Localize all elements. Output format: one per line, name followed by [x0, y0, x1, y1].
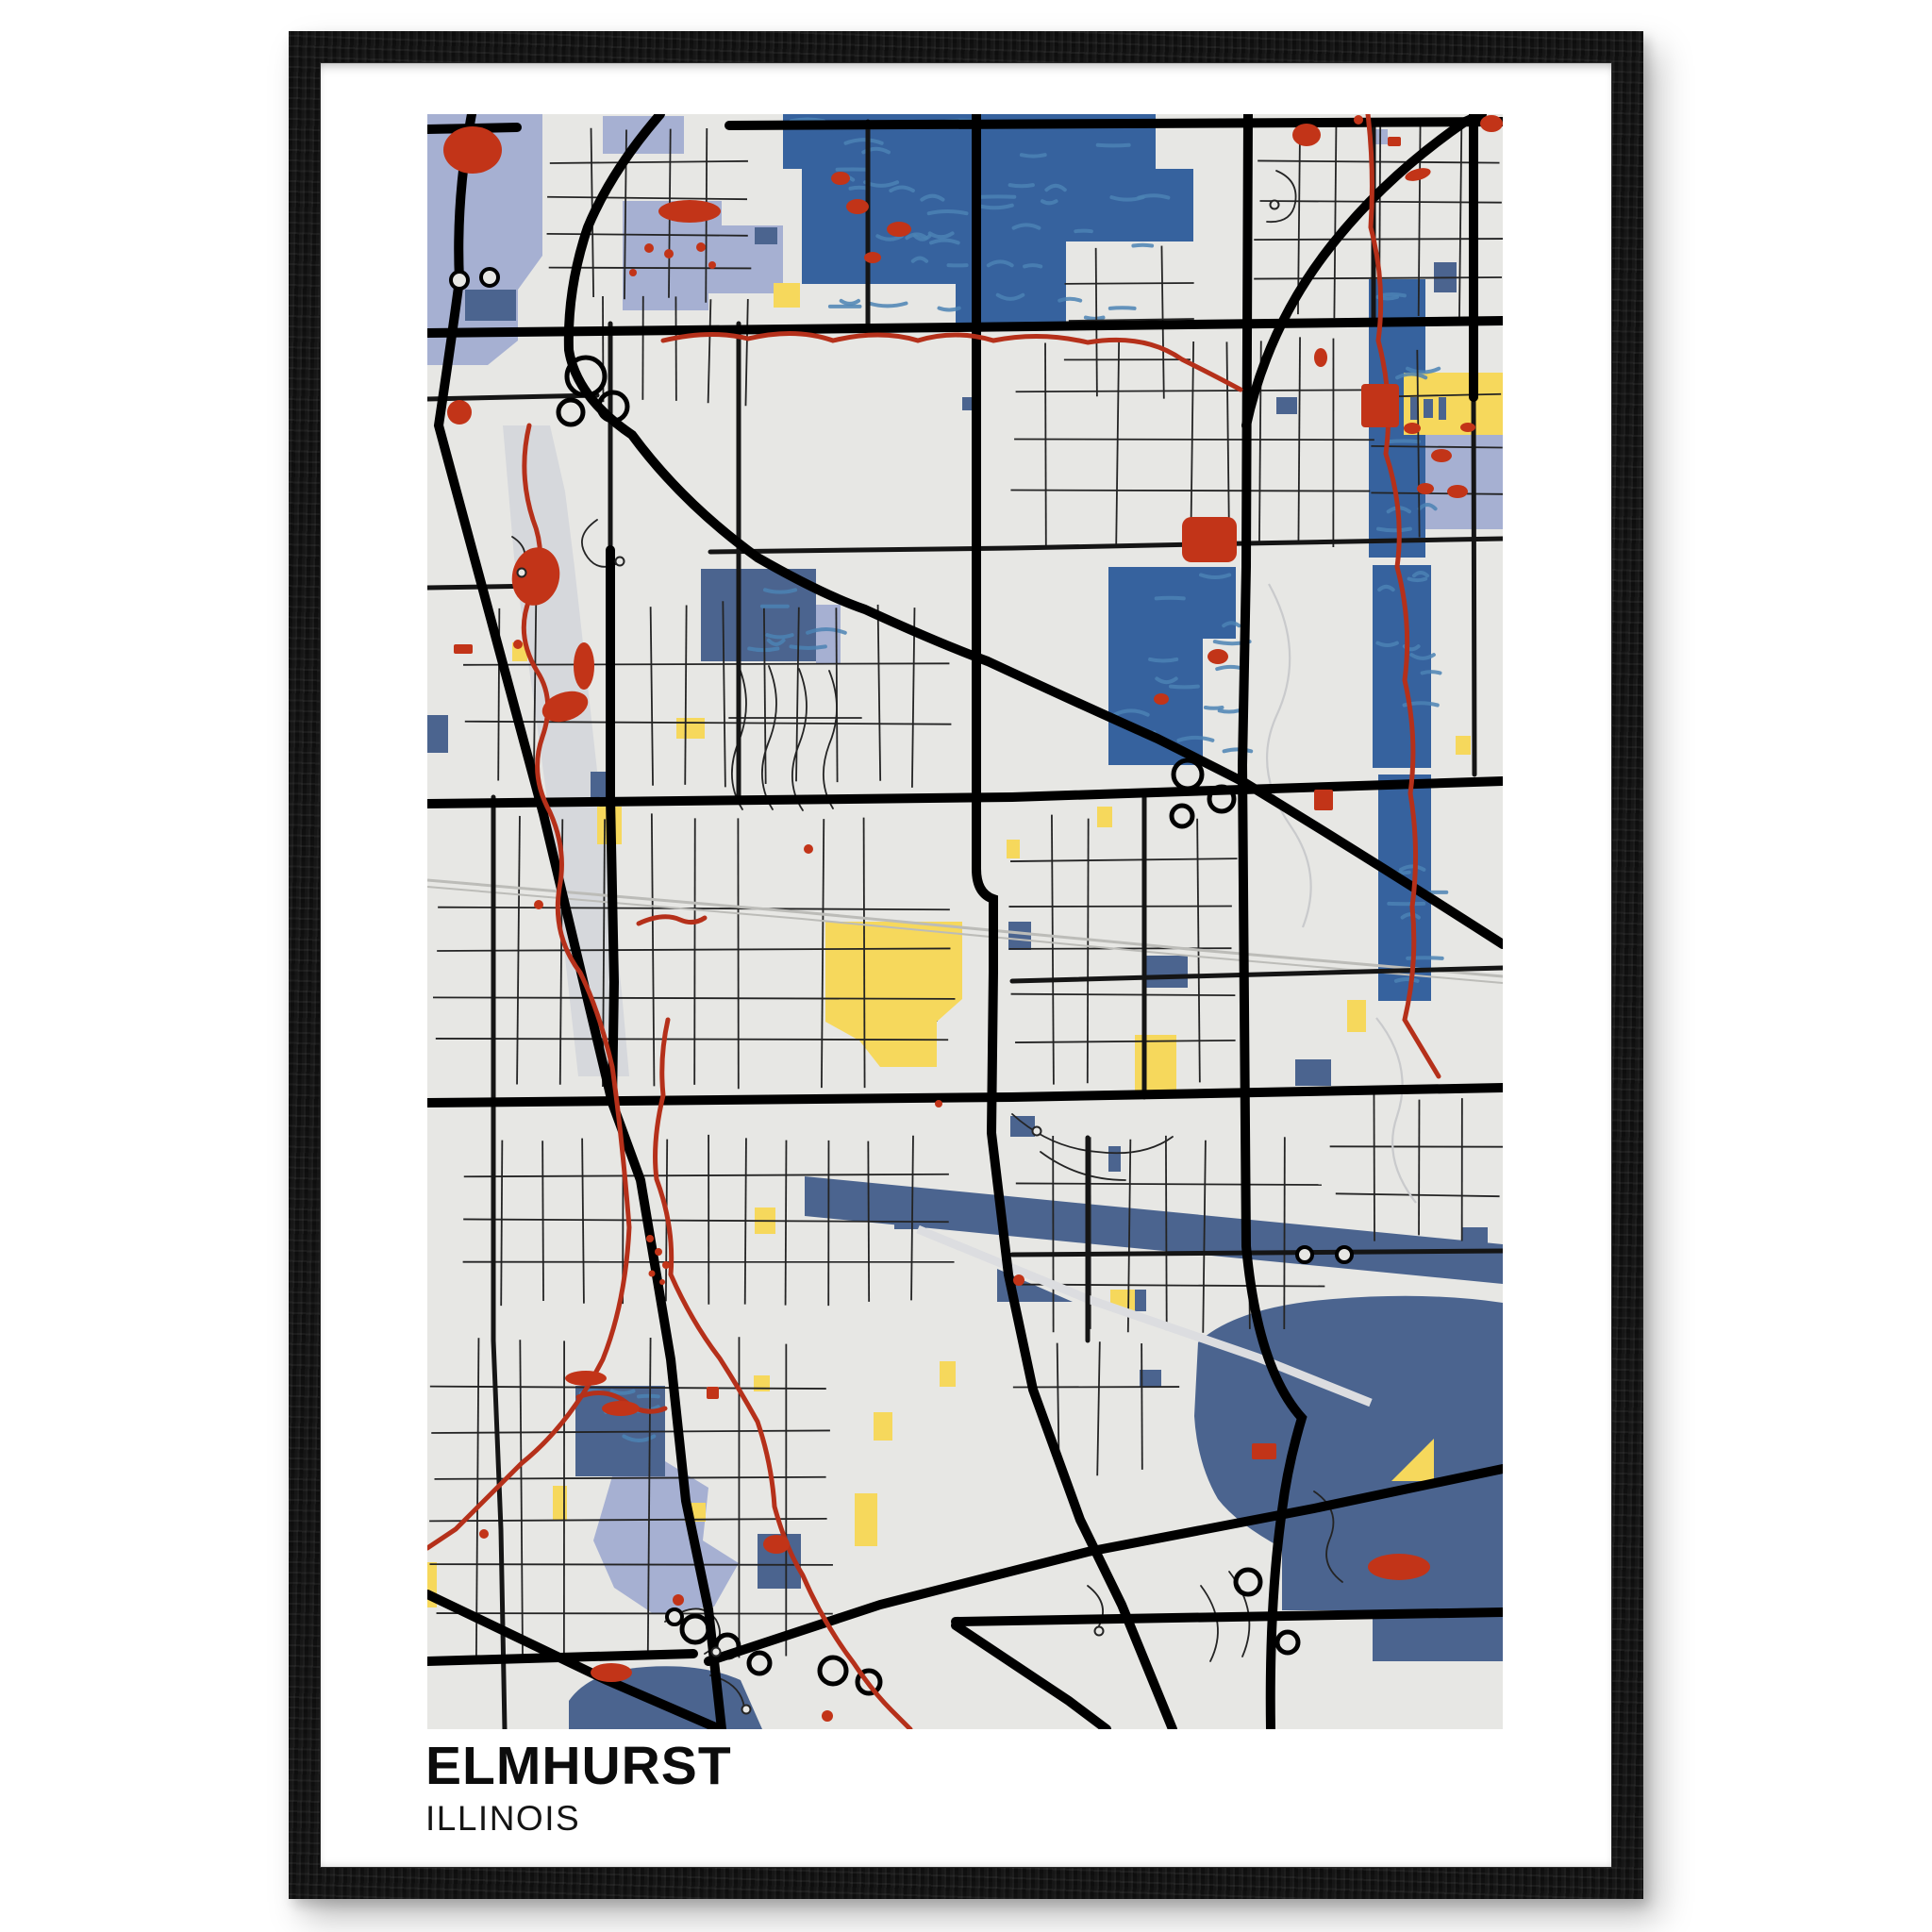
poster-title-block: ELMHURST ILLINOIS — [425, 1740, 732, 1836]
city-map-svg — [427, 114, 1503, 1729]
state-name-label: ILLINOIS — [425, 1801, 732, 1836]
city-name-label: ELMHURST — [425, 1740, 732, 1793]
product-photo-page: ELMHURST ILLINOIS — [0, 0, 1932, 1932]
city-map-print — [427, 114, 1503, 1729]
